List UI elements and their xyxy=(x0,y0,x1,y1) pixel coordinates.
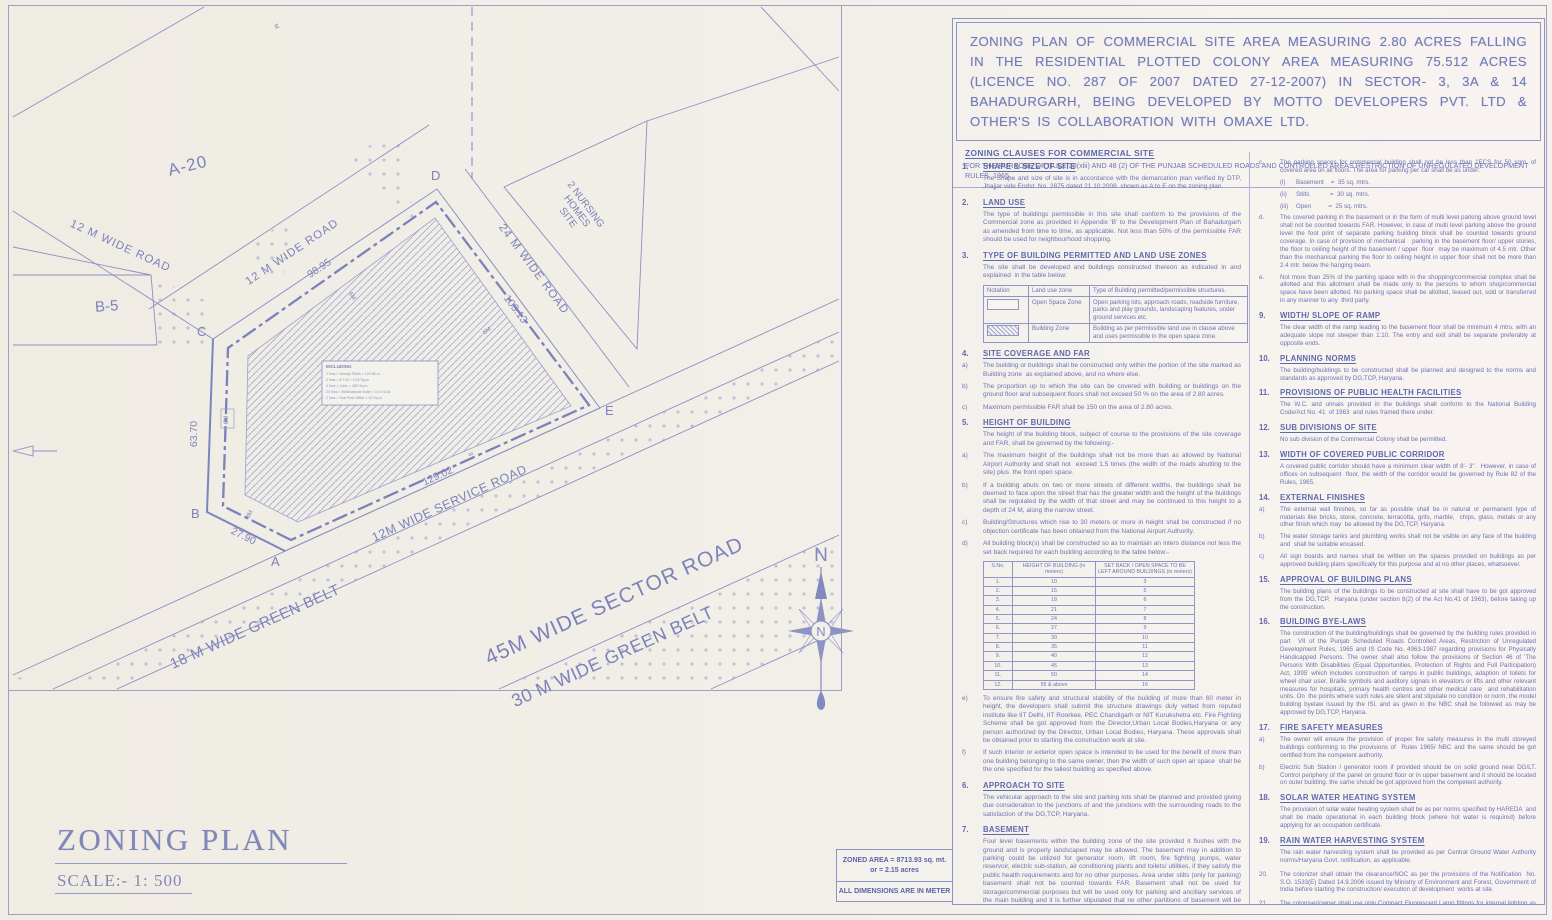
table-row: Building Zone Building as per permissibl… xyxy=(984,323,1248,342)
table-row: 9.4012 xyxy=(984,652,1195,661)
clause-13: 13.WIDTH OF COVERED PUBLIC CORRIDOR A co… xyxy=(1259,450,1536,487)
compass-n-letter: N xyxy=(814,545,828,566)
zoned-area-value: ZONED AREA = 8713.93 sq. mt. xyxy=(837,856,952,865)
sheet-scale: SCALE:- 1: 500 xyxy=(55,871,192,894)
zoned-area-box: ZONED AREA = 8713.93 sq. mt. or = 2.15 a… xyxy=(836,849,953,902)
clause-2: 2.LAND USE The type of buildings permiss… xyxy=(962,198,1241,245)
dim-bc: 63.70 xyxy=(188,421,200,447)
table-row: 3.186 xyxy=(984,596,1195,605)
table-row: 10.4513 xyxy=(984,661,1195,670)
clause-7: 7.BASEMENT Four level basements within t… xyxy=(962,825,1241,904)
point-b: B xyxy=(191,506,200,521)
point-d: D xyxy=(431,168,440,183)
clause-15: 15.APPROVAL OF BUILDING PLANS The buildi… xyxy=(1259,575,1536,612)
road-12m-left-label: 12 M WIDE ROAD xyxy=(68,218,172,275)
compass-center-n: N xyxy=(816,624,825,639)
point-c: C xyxy=(197,324,206,339)
plot-a20-label: A-20 xyxy=(166,152,209,180)
building-zone-swatch xyxy=(987,325,1019,336)
setback-6m: 6M xyxy=(224,416,230,424)
clauses-column-right: c.The parking spaces for commercial buil… xyxy=(1249,152,1544,904)
clause-5: 5.HEIGHT OF BUILDING The height of the b… xyxy=(962,418,1241,774)
legend-row: 24 Nos = Multivational Suite = 3.0 x 5.5… xyxy=(326,390,391,394)
clause-18: 18.SOLAR WATER HEATING SYSTEM The provis… xyxy=(1259,793,1536,830)
clause-20: 20.The colonizer shall obtain the cleara… xyxy=(1259,871,1536,895)
dim-ab: 27.90 xyxy=(229,525,258,548)
clause-12: 12.SUB DIVISIONS OF SITE No sub division… xyxy=(1259,423,1536,444)
clause-14: 14.EXTERNAL FINISHES a)The external wall… xyxy=(1259,493,1536,569)
table-row: 12.55 & above16 xyxy=(984,680,1195,689)
clause-19: 19.RAIN WATER HARVESTING SYSTEM The rain… xyxy=(1259,836,1536,865)
setback-8m: 8M xyxy=(246,509,255,519)
land-use-table: Notation Land use zone Type of Building … xyxy=(983,285,1248,344)
legend-row: 4 Nos = Cant. = 280 Sq.m xyxy=(326,384,368,388)
plot-b5-label: B-5 xyxy=(94,297,118,316)
table-row: 1.103 xyxy=(984,577,1195,586)
clause-8-continued: c.The parking spaces for commercial buil… xyxy=(1259,159,1536,305)
clause-1: 1.SHAPE & SIZE OF SITE The Shape and siz… xyxy=(962,162,1241,192)
table-row: 5.248 xyxy=(984,615,1195,624)
table-row: 7.3010 xyxy=(984,633,1195,642)
nursing-site-label: 2 NURSING HOMES SITE xyxy=(547,180,606,244)
clause-6: 6.APPROACH TO SITE The vehicular approac… xyxy=(962,781,1241,819)
point-a: A xyxy=(271,554,280,569)
clause-4: 4.SITE COVERAGE AND FAR a)The building o… xyxy=(962,349,1241,412)
table-row: 4.217 xyxy=(984,605,1195,614)
table-row: Open Space Zone Open parking lots, appro… xyxy=(984,297,1248,324)
table-row: 2.155 xyxy=(984,587,1195,596)
legend-title: INCLUDING xyxy=(326,364,352,369)
point-e: E xyxy=(605,403,614,418)
legend-row: 2 Nos = Sub Post Office = 40 Sq.m xyxy=(326,396,382,400)
clause-9: 9.WIDTH/ SLOPE OF RAMP The clear width o… xyxy=(1259,311,1536,348)
clause-3: 3.TYPE OF BUILDING PERMITTED AND LAND US… xyxy=(962,251,1241,344)
clause-10: 10.PLANNING NORMS The building/buildings… xyxy=(1259,354,1536,383)
table-row: 6.279 xyxy=(984,624,1195,633)
clause-17: 17.FIRE SAFETY MEASURES a)The owner will… xyxy=(1259,723,1536,787)
legend-row: 2 Nos = A.T.M = 12.6 Sq.m xyxy=(326,378,369,382)
drawing-title-block: ZONING PLAN OF COMMERCIAL SITE AREA MEAS… xyxy=(956,22,1541,141)
sheet-title-area: ZONING PLAN SCALE:- 1: 500 xyxy=(55,822,347,894)
legend-row: 2 Nos = Woody Plinth = 123.86 m xyxy=(326,372,380,376)
dimensions-note: ALL DIMENSIONS ARE IN METER xyxy=(839,887,951,896)
clauses-column-left: 1.SHAPE & SIZE OF SITE The Shape and siz… xyxy=(953,152,1249,904)
open-space-swatch xyxy=(987,299,1019,310)
zoned-area-acres: or = 2.15 acres xyxy=(837,866,952,875)
site-plan-drawing: INCLUDING 2 Nos = Woody Plinth = 123.86 … xyxy=(9,6,842,691)
zoning-clauses-panel: ZONING PLAN OF COMMERCIAL SITE AREA MEAS… xyxy=(952,18,1545,905)
drawing-title-text: ZONING PLAN OF COMMERCIAL SITE AREA MEAS… xyxy=(970,32,1527,132)
setback-table: S.No. HEIGHT OF BUILDING (in meters) SET… xyxy=(983,561,1195,690)
site-plan-svg: INCLUDING 2 Nos = Woody Plinth = 123.86 … xyxy=(8,5,908,915)
sheet-title: ZONING PLAN xyxy=(55,822,347,864)
table-row: 11.5014 xyxy=(984,671,1195,680)
table-row: 8.3511 xyxy=(984,643,1195,652)
plan-legend: INCLUDING 2 Nos = Woody Plinth = 123.86 … xyxy=(322,361,438,405)
clause-21: 21.The coloniser/owner shall use only Co… xyxy=(1259,900,1536,904)
clause-16: 16.BUILDING BYE-LAWS The construction of… xyxy=(1259,617,1536,717)
clause-11: 11.PROVISIONS OF PUBLIC HEALTH FACILITIE… xyxy=(1259,388,1536,417)
